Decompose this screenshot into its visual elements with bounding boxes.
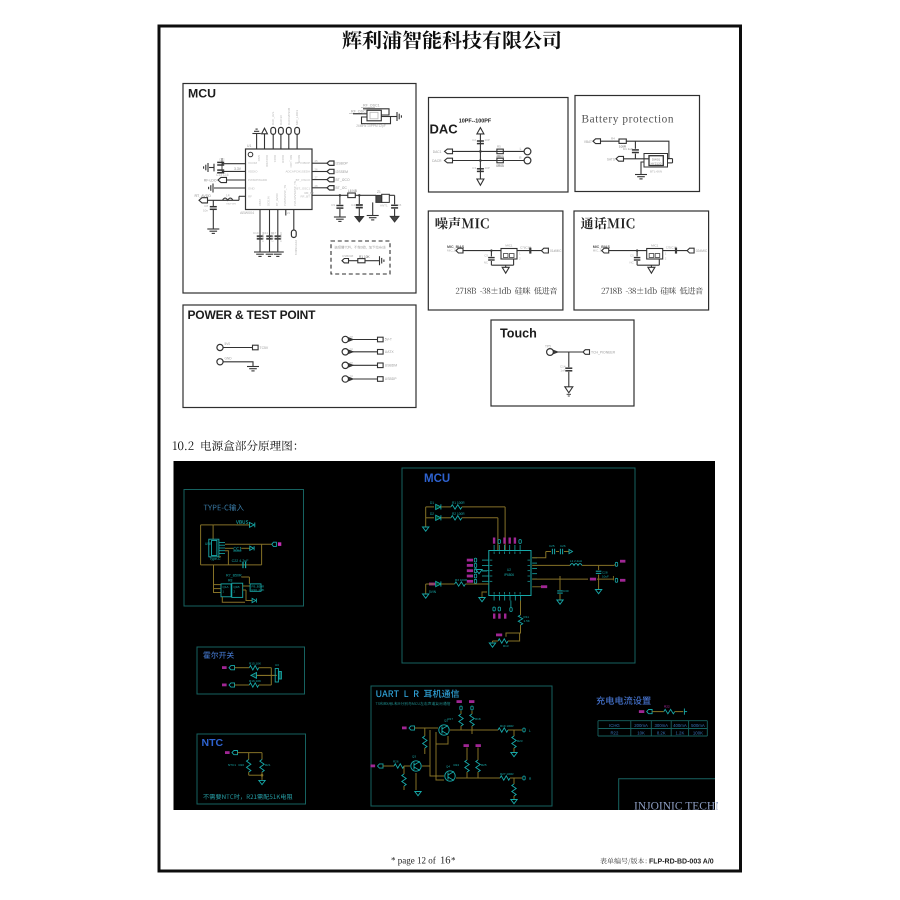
- svg-text:R18: R18: [475, 717, 481, 721]
- svg-text:10uF: 10uF: [602, 575, 609, 579]
- svg-text:R3 100R: R3 100R: [455, 578, 468, 582]
- svg-text:MCU: MCU: [188, 87, 216, 101]
- svg-text:400mA: 400mA: [673, 723, 687, 728]
- svg-text:02#MIC: 02#MIC: [696, 249, 708, 253]
- svg-text:FLP-RD-BD-003 A/0: FLP-RD-BD-003 A/0: [649, 858, 714, 865]
- svg-text:C4: C4: [351, 203, 355, 207]
- svg-text:U2: U2: [507, 568, 511, 572]
- svg-text:MIC1: MIC1: [651, 244, 658, 248]
- svg-text:DACO/P3VB: DACO/P3VB: [287, 108, 291, 125]
- svg-text:C10: C10: [253, 231, 259, 235]
- svg-text:NC: NC: [484, 261, 488, 265]
- svg-text:1.5K: 1.5K: [524, 619, 531, 623]
- svg-text:R27 100R: R27 100R: [500, 772, 514, 776]
- svg-text:VDDIO: VDDIO: [248, 169, 258, 173]
- svg-text:R4: R4: [611, 137, 615, 141]
- svg-text:Type-C: Type-C: [210, 557, 221, 561]
- svg-text:D1: D1: [430, 501, 434, 505]
- svg-text:C26: C26: [560, 544, 566, 548]
- svg-text:C12: C12: [219, 158, 225, 162]
- svg-text:C3: C3: [472, 166, 476, 170]
- svg-text:C13 C16: C13 C16: [216, 173, 229, 177]
- svg-text:25: 25: [315, 159, 319, 163]
- svg-text:MICIN: MICIN: [297, 155, 301, 163]
- svg-text:RF_OSC1: RF_OSC1: [363, 104, 380, 108]
- svg-text:RF_BT: RF_BT: [305, 191, 315, 195]
- svg-text:Q1B: Q1B: [234, 585, 240, 589]
- svg-text:DAC: DAC: [430, 122, 459, 137]
- svg-text:5VIN: 5VIN: [429, 590, 437, 594]
- svg-text:PWM/PWADD: PWM/PWADD: [248, 178, 268, 182]
- svg-text:500mA: 500mA: [691, 723, 705, 728]
- svg-text:Q2: Q2: [444, 719, 448, 723]
- svg-text:5V0: 5V0: [225, 342, 231, 346]
- svg-text:BT_I2C: BT_I2C: [336, 186, 348, 190]
- svg-text:100K: 100K: [693, 730, 703, 735]
- svg-text:16: 16: [440, 856, 451, 867]
- svg-text:R22: R22: [610, 730, 618, 735]
- svg-text:RF_OSC2: RF_OSC2: [351, 109, 368, 113]
- svg-text:C8: C8: [204, 204, 208, 208]
- svg-text:R23: R23: [517, 739, 523, 743]
- svg-text:C11: C11: [263, 231, 269, 235]
- svg-text:USBDP: USBDP: [385, 377, 397, 381]
- svg-text:R16 10K: R16 10K: [249, 679, 262, 683]
- svg-text:BTL-66N: BTL-66N: [650, 169, 662, 173]
- svg-text:L6 NB: L6 NB: [348, 189, 357, 193]
- svg-text:10P: 10P: [485, 138, 490, 142]
- svg-text:R22: R22: [664, 705, 670, 709]
- svg-text:GND: GND: [225, 356, 233, 360]
- svg-text:NC: NC: [630, 261, 634, 265]
- svg-text:VBAT: VBAT: [258, 199, 262, 206]
- svg-text:C5: C5: [484, 254, 488, 258]
- svg-text:VDD3.3: VDD3.3: [279, 232, 283, 242]
- svg-text:NTC: NTC: [202, 737, 224, 749]
- svg-text:L: L: [529, 729, 531, 733]
- svg-text:21: 21: [287, 211, 291, 215]
- svg-text:U1: U1: [247, 144, 251, 148]
- svg-text:Z1: Z1: [377, 190, 381, 194]
- svg-text:C1 1uF: C1 1uF: [623, 147, 633, 151]
- svg-text:Battery protection: Battery protection: [582, 114, 675, 126]
- svg-text:TP5: TP5: [545, 345, 551, 349]
- svg-text:BT_OSCO: BT_OSCO: [296, 178, 311, 182]
- svg-text:NTC1: NTC1: [228, 763, 236, 767]
- svg-text:ABW004: ABW004: [240, 211, 254, 215]
- svg-text:R25: R25: [481, 763, 487, 767]
- svg-text:ANT1: ANT1: [380, 204, 388, 208]
- svg-text:Q4: Q4: [446, 765, 450, 769]
- svg-text:USB03#: USB03#: [342, 254, 354, 258]
- svg-text:U3: U3: [275, 663, 279, 667]
- svg-text:R15 10K: R15 10K: [249, 662, 262, 666]
- svg-text:Touch: Touch: [500, 327, 537, 341]
- svg-text:10n: 10n: [203, 209, 208, 213]
- svg-text:VCOM: VCOM: [248, 161, 258, 165]
- svg-text:R7_B50R: R7_B50R: [226, 574, 242, 578]
- svg-text:R17: R17: [447, 717, 453, 721]
- svg-text:R19 100R: R19 100R: [500, 724, 514, 728]
- svg-text:POWER & TEST POINT: POWER & TEST POINT: [188, 308, 317, 322]
- svg-text:GND: GND: [257, 155, 261, 161]
- svg-text:Q3: Q3: [412, 755, 416, 759]
- svg-text:DAC_AVL: DAC_AVL: [271, 111, 275, 125]
- svg-text:R24: R24: [453, 763, 459, 767]
- svg-text:R10_1.2K: R10_1.2K: [252, 588, 265, 592]
- svg-text:3.3V: 3.3V: [234, 167, 242, 171]
- svg-text:DACR: DACR: [432, 159, 442, 163]
- svg-text:RF: RF: [248, 195, 252, 199]
- svg-text:MIC_LDO: MIC_LDO: [289, 155, 293, 168]
- svg-text:8.2K: 8.2K: [657, 730, 666, 735]
- svg-text:PWL/WVSA/SP_TN: PWL/WVSA/SP_TN: [293, 181, 297, 206]
- svg-text:R13: R13: [503, 644, 509, 648]
- svg-text:DAC1: DAC1: [433, 150, 442, 154]
- svg-text:MCU: MCU: [424, 473, 450, 485]
- svg-text:5V-T: 5V-T: [385, 338, 392, 342]
- svg-text:BT_I2CO: BT_I2CO: [336, 178, 350, 182]
- svg-text:USB: USB: [205, 542, 212, 546]
- svg-text:C2: C2: [472, 138, 476, 142]
- svg-text:C22 4.7uF: C22 4.7uF: [232, 559, 250, 563]
- svg-text:1.2K: 1.2K: [675, 730, 684, 735]
- svg-text:DACVDD: DACVDD: [265, 155, 269, 167]
- svg-text:* page 12 of: * page 12 of: [391, 856, 436, 866]
- svg-text:R20: R20: [238, 763, 244, 767]
- svg-text:200mA: 200mA: [634, 723, 648, 728]
- svg-text:ADCAPCH1SEDA: ADCAPCH1SEDA: [285, 169, 310, 173]
- svg-text:I2SSEM: I2SSEM: [336, 170, 349, 174]
- svg-text:C30: C30: [563, 589, 569, 593]
- svg-text:HY2120: HY2120: [651, 162, 662, 166]
- svg-text:C6: C6: [398, 203, 402, 207]
- svg-text:DAC3V: DAC3V: [279, 115, 283, 125]
- svg-text:C17: C17: [271, 231, 277, 235]
- svg-text:01#MIC: 01#MIC: [550, 249, 562, 253]
- svg-text:GND: GND: [248, 186, 256, 190]
- svg-text:27: 27: [315, 176, 319, 180]
- svg-text:DACR: DACR: [281, 155, 285, 163]
- svg-text:R1 100R: R1 100R: [452, 501, 465, 505]
- svg-text:*: *: [451, 856, 456, 866]
- svg-text:0R05: 0R05: [496, 164, 504, 168]
- svg-text:L1 2.2uH: L1 2.2uH: [570, 559, 582, 563]
- svg-text:300mA: 300mA: [654, 723, 668, 728]
- svg-text:R26: R26: [393, 760, 399, 764]
- svg-text:I2SBOP: I2SBOP: [336, 162, 349, 166]
- svg-text:TCH_PIONEER: TCH_PIONEER: [591, 351, 616, 355]
- svg-text:26: 26: [315, 168, 319, 172]
- svg-text:IP6806: IP6806: [504, 573, 514, 577]
- svg-text:R2 100R: R2 100R: [452, 512, 465, 516]
- svg-text:MIC_LDO3: MIC_LDO3: [295, 110, 299, 125]
- svg-text:VBAT: VBAT: [584, 140, 592, 144]
- svg-text:L: L: [520, 147, 522, 151]
- svg-text:PWM/WVSP_TN: PWM/WVSP_TN: [283, 185, 287, 206]
- svg-text:10K: 10K: [637, 730, 645, 735]
- svg-text:UATX: UATX: [385, 350, 395, 354]
- svg-text:R6: R6: [497, 154, 501, 158]
- svg-text:mur-ws: mur-ws: [226, 202, 236, 206]
- svg-text:PPPVMIC3: PPPVMIC3: [294, 240, 298, 256]
- svg-text:C25: C25: [549, 544, 555, 548]
- svg-text:10P: 10P: [485, 166, 490, 170]
- svg-text:L4: L4: [226, 194, 230, 198]
- svg-text:SATS: SATS: [607, 157, 615, 161]
- svg-text:BT_AVDD: BT_AVDD: [275, 193, 279, 206]
- svg-text:C9: C9: [331, 203, 335, 207]
- svg-text:R5: R5: [497, 145, 501, 149]
- svg-text:ICHG: ICHG: [609, 723, 620, 728]
- svg-text:MIC1: MIC1: [505, 244, 512, 248]
- svg-text:TC5V: TC5V: [260, 346, 269, 350]
- svg-text:R8: R8: [228, 579, 232, 583]
- svg-text:Q1A: Q1A: [223, 585, 229, 589]
- svg-text:D2: D2: [430, 512, 434, 516]
- svg-text:26MHz 10PPM 12pF: 26MHz 10PPM 12pF: [356, 124, 386, 128]
- svg-text:R21: R21: [265, 763, 271, 767]
- svg-text:28: 28: [315, 184, 319, 188]
- svg-text:RF-LDO: RF-LDO: [204, 179, 217, 183]
- svg-text:DAC1: DAC1: [273, 155, 277, 163]
- svg-text:USBDM: USBDM: [385, 364, 397, 368]
- svg-text:C5: C5: [630, 254, 634, 258]
- svg-text:1nF: 1nF: [560, 369, 565, 373]
- svg-text:BT_OSC1: BT_OSC1: [296, 186, 310, 190]
- svg-text:10PF--100PF: 10PF--100PF: [459, 118, 492, 124]
- svg-text:DCOJN: DCOJN: [267, 196, 271, 206]
